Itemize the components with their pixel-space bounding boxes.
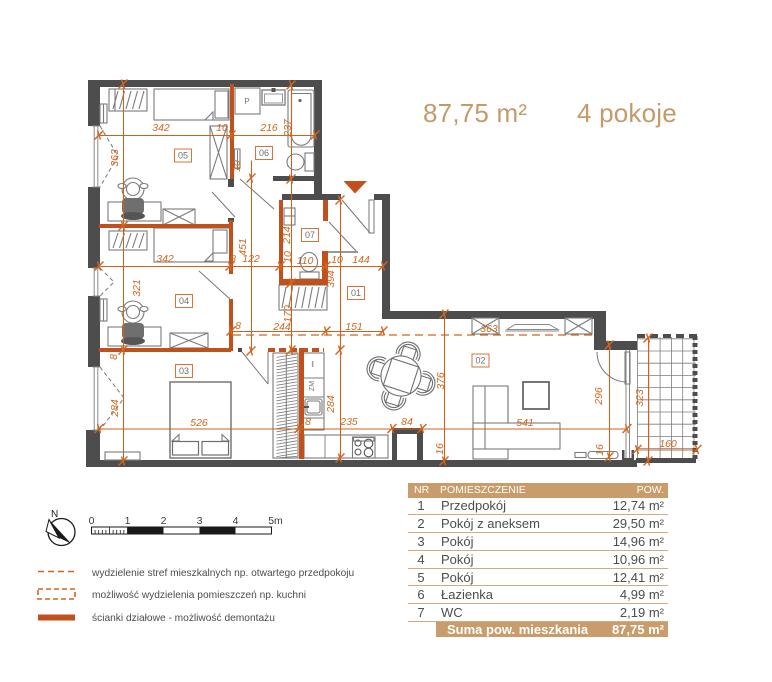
svg-text:216: 216 (259, 122, 278, 134)
svg-text:możliwość wydzielenia pomieszc: możliwość wydzielenia pomieszczeń np. ku… (92, 590, 306, 601)
svg-text:394: 394 (325, 270, 337, 288)
svg-text:110: 110 (297, 255, 314, 267)
svg-text:02: 02 (475, 356, 485, 366)
svg-text:0: 0 (89, 515, 95, 527)
svg-text:363: 363 (480, 323, 498, 335)
svg-text:ścianki działowe - możliwość: ścianki działowe - możliwość demontażu (92, 613, 275, 624)
svg-text:526: 526 (190, 417, 208, 429)
svg-text:10: 10 (216, 122, 228, 134)
svg-text:wydzielenie stref mieszkalnyc: wydzielenie stref mieszkalnych np. otwar… (91, 568, 354, 579)
svg-text:342: 342 (152, 122, 170, 134)
svg-text:235: 235 (339, 416, 358, 428)
svg-text:160: 160 (659, 438, 677, 450)
svg-text:•••: ••• (311, 361, 317, 367)
svg-text:04: 04 (179, 296, 189, 306)
svg-text:10: 10 (231, 160, 243, 172)
svg-text:03: 03 (179, 366, 189, 376)
svg-text:237: 237 (282, 118, 294, 138)
svg-text:5m: 5m (268, 515, 283, 527)
svg-text:284: 284 (109, 399, 121, 418)
svg-text:N: N (51, 509, 58, 520)
svg-text:ZM: ZM (309, 381, 316, 391)
svg-text:16: 16 (594, 444, 606, 456)
svg-text:05: 05 (178, 151, 188, 161)
svg-text:342: 342 (156, 253, 174, 265)
svg-text:296: 296 (593, 387, 605, 406)
svg-text:10: 10 (331, 254, 343, 266)
svg-text:376: 376 (435, 372, 447, 390)
svg-text:144: 144 (352, 254, 370, 266)
svg-text:01: 01 (351, 288, 361, 298)
svg-text:3: 3 (197, 515, 203, 527)
svg-text:07: 07 (305, 230, 315, 240)
svg-text:451: 451 (237, 238, 249, 256)
svg-text:8: 8 (305, 416, 311, 428)
svg-text:10: 10 (282, 251, 294, 263)
svg-text:170: 170 (282, 305, 294, 323)
svg-text:16: 16 (434, 443, 446, 455)
svg-text:1: 1 (125, 515, 131, 527)
svg-text:151: 151 (345, 321, 363, 333)
svg-text:8: 8 (108, 354, 120, 360)
svg-text:4: 4 (233, 515, 239, 527)
svg-text:541: 541 (516, 417, 534, 429)
svg-text:214: 214 (281, 226, 293, 245)
svg-text:323: 323 (634, 389, 646, 407)
svg-text:321: 321 (131, 279, 143, 297)
svg-text:06: 06 (259, 148, 269, 158)
svg-text:8: 8 (235, 320, 241, 332)
svg-text:P: P (244, 97, 249, 106)
svg-text:84: 84 (401, 416, 413, 428)
svg-text:8: 8 (230, 253, 236, 265)
svg-text:363: 363 (109, 149, 121, 167)
svg-text:284: 284 (325, 395, 337, 414)
svg-text:2: 2 (161, 515, 167, 527)
